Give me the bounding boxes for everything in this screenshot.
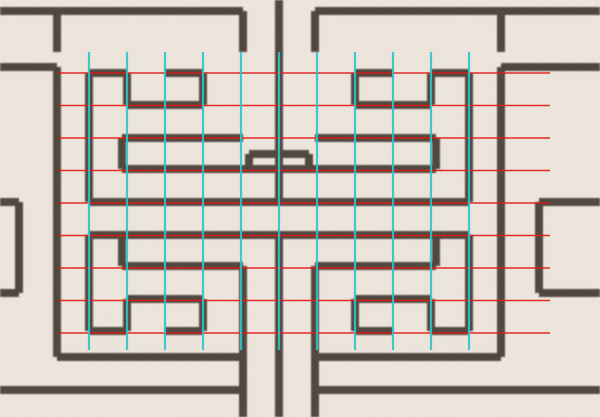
lattice-pattern-figure <box>0 0 600 417</box>
lattice-svg <box>0 0 600 417</box>
